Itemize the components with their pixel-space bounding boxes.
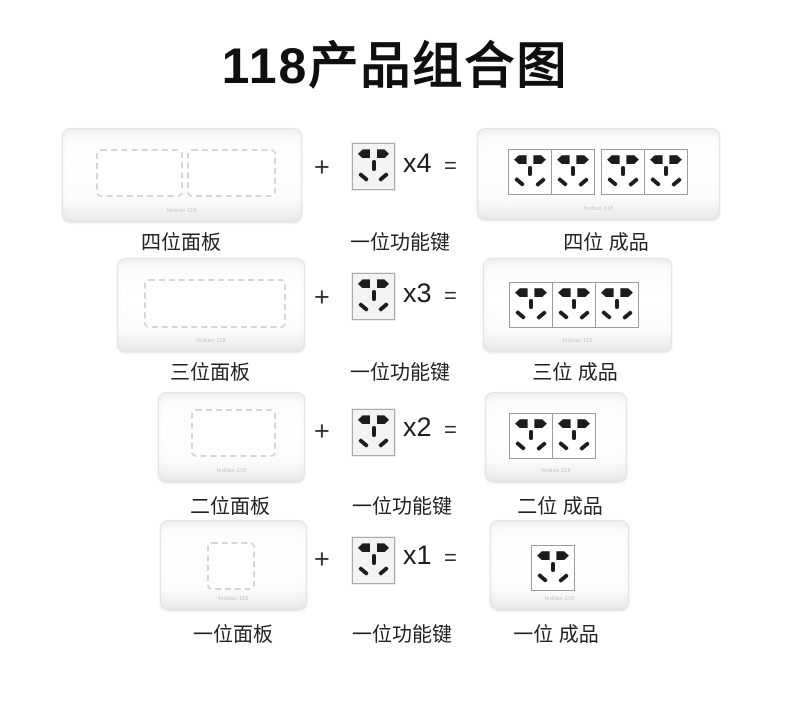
socket-hole-bottom-right <box>671 177 682 187</box>
brand-mark: feidiao·118 <box>161 597 306 602</box>
socket-hole-earth <box>372 290 376 301</box>
socket-hole-top-right <box>377 543 389 552</box>
function-key-image <box>352 143 395 190</box>
socket-hole-bottom-right <box>578 177 589 187</box>
socket-module <box>552 413 596 459</box>
socket-hole-bottom-left <box>358 172 369 182</box>
socket-hole-earth <box>551 562 555 573</box>
panel-4gang-image: feidiao·118 <box>62 128 302 222</box>
combo-row-1gang: feidiao·118 + x1 = feidiao·118 一位面板 一位功能… <box>0 520 790 652</box>
plus-operator: + <box>314 282 330 313</box>
socket-hole-bottom-left <box>607 177 618 187</box>
socket-group <box>509 413 596 459</box>
socket-group <box>531 545 575 591</box>
module-caption: 一位功能键 <box>352 618 452 647</box>
brand-mark: feidiao·118 <box>478 207 719 212</box>
socket-hole-earth <box>529 299 533 310</box>
socket-hole-top-right <box>534 419 547 428</box>
socket-hole-bottom-right <box>628 177 639 187</box>
socket-hole-top-left <box>514 155 527 164</box>
socket-module <box>601 149 645 195</box>
panel-2gang-image: feidiao·118 <box>158 392 305 482</box>
socket-group <box>508 149 595 195</box>
multiplier-text: x1 <box>403 540 432 571</box>
socket-hole-bottom-left <box>558 310 569 320</box>
socket-module <box>552 282 596 328</box>
combo-row-4gang: feidiao·118 + x4 = feidiao·118 四位面板 一位功能… <box>0 128 790 260</box>
socket-hole-top-right <box>669 155 682 164</box>
socket-hole-top-left <box>515 288 528 297</box>
product-4gang-image: feidiao·118 <box>477 128 720 220</box>
socket-hole-top-right <box>620 288 633 297</box>
module-caption: 一位功能键 <box>350 226 450 255</box>
socket-group <box>601 149 688 195</box>
socket-hole-top-right <box>577 419 590 428</box>
panel-opening <box>96 149 183 197</box>
function-key-image <box>352 537 395 584</box>
brand-mark: feidiao·118 <box>118 339 304 344</box>
socket-hole-bottom-left <box>358 566 369 576</box>
socket-hole-top-right <box>556 551 569 560</box>
brand-mark: feidiao·118 <box>486 469 626 474</box>
socket-strip <box>531 545 575 591</box>
product-3gang-image: feidiao·118 <box>483 258 672 352</box>
function-key-image <box>352 409 395 456</box>
socket-hole-top-left <box>358 279 370 288</box>
panel-opening <box>191 409 276 457</box>
socket-hole-earth <box>528 166 532 177</box>
panel-caption: 二位面板 <box>190 490 270 519</box>
socket-hole-top-right <box>377 279 389 288</box>
socket-hole-bottom-left <box>557 177 568 187</box>
socket-module <box>644 149 688 195</box>
socket-module <box>595 282 639 328</box>
product-caption: 一位 成品 <box>513 618 599 647</box>
socket-hole-top-left <box>650 155 663 164</box>
equals-operator: = <box>444 417 457 443</box>
socket-hole-earth <box>529 430 533 441</box>
socket-hole-top-right <box>576 155 589 164</box>
socket-hole-bottom-right <box>558 573 569 583</box>
socket-group <box>509 282 639 328</box>
socket-hole-bottom-left <box>601 310 612 320</box>
plus-operator: + <box>314 152 330 183</box>
product-caption: 四位 成品 <box>563 226 649 255</box>
socket-hole-bottom-right <box>579 310 590 320</box>
function-key-image <box>352 273 395 320</box>
brand-mark: feidiao·118 <box>484 339 671 344</box>
panel-1gang-image: feidiao·118 <box>160 520 307 610</box>
multiplier-text: x4 <box>403 148 432 179</box>
socket-hole-earth <box>372 426 376 437</box>
socket-hole-bottom-left <box>515 310 526 320</box>
product-caption: 二位 成品 <box>517 490 603 519</box>
socket-module <box>509 282 553 328</box>
panel-3gang-image: feidiao·118 <box>117 258 305 352</box>
socket-strip <box>509 413 596 459</box>
socket-hole-bottom-right <box>378 302 389 312</box>
socket-hole-top-left <box>558 419 571 428</box>
module-caption: 一位功能键 <box>352 490 452 519</box>
socket-hole-bottom-left <box>514 177 525 187</box>
socket-strip <box>509 282 639 328</box>
socket-hole-top-right <box>534 288 547 297</box>
socket-strip <box>508 149 688 195</box>
socket-hole-bottom-right <box>536 310 547 320</box>
socket-hole-bottom-right <box>579 441 590 451</box>
socket-hole-bottom-left <box>515 441 526 451</box>
socket-hole-earth <box>621 166 625 177</box>
combo-row-3gang: feidiao·118 + x3 = feidiao·118 三位面板 一位功能… <box>0 258 790 390</box>
equals-operator: = <box>444 283 457 309</box>
panel-caption: 三位面板 <box>170 356 250 385</box>
socket-hole-earth <box>372 554 376 565</box>
socket-hole-top-left <box>601 288 614 297</box>
equals-operator: = <box>444 153 457 179</box>
socket-hole-top-right <box>377 415 389 424</box>
brand-mark: feidiao·118 <box>159 469 304 474</box>
panel-opening <box>144 279 286 328</box>
socket-hole-top-left <box>607 155 620 164</box>
socket-module <box>509 413 553 459</box>
socket-hole-bottom-left <box>558 441 569 451</box>
brand-mark: feidiao·118 <box>63 209 301 214</box>
multiplier-text: x2 <box>403 412 432 443</box>
socket-hole-top-left <box>358 149 370 158</box>
socket-hole-top-left <box>558 288 571 297</box>
product-1gang-image: feidiao·118 <box>490 520 629 610</box>
socket-hole-top-left <box>557 155 570 164</box>
equals-operator: = <box>444 545 457 571</box>
socket-hole-top-left <box>358 543 370 552</box>
socket-hole-bottom-right <box>378 438 389 448</box>
socket-hole-top-right <box>377 149 389 158</box>
page-title: 118产品组合图 <box>0 26 790 98</box>
multiplier-text: x3 <box>403 278 432 309</box>
socket-hole-earth <box>571 166 575 177</box>
brand-mark: feidiao·118 <box>491 597 628 602</box>
panel-caption: 一位面板 <box>193 618 273 647</box>
socket-hole-bottom-right <box>535 177 546 187</box>
socket-hole-earth <box>572 299 576 310</box>
socket-hole-top-left <box>537 551 550 560</box>
socket-hole-top-left <box>358 415 370 424</box>
socket-hole-bottom-right <box>378 172 389 182</box>
panel-caption: 四位面板 <box>141 226 221 255</box>
product-caption: 三位 成品 <box>532 356 618 385</box>
product-combination-diagram: 118产品组合图 feidiao·118 + x4 = feidiao·118 … <box>0 0 790 714</box>
socket-hole-earth <box>372 160 376 171</box>
socket-hole-bottom-right <box>536 441 547 451</box>
socket-hole-bottom-right <box>378 566 389 576</box>
socket-hole-top-right <box>626 155 639 164</box>
panel-opening <box>207 542 255 590</box>
product-2gang-image: feidiao·118 <box>485 392 627 482</box>
plus-operator: + <box>314 416 330 447</box>
plus-operator: + <box>314 544 330 575</box>
socket-hole-earth <box>664 166 668 177</box>
socket-hole-earth <box>572 430 576 441</box>
socket-hole-bottom-right <box>622 310 633 320</box>
socket-hole-bottom-left <box>537 573 548 583</box>
module-caption: 一位功能键 <box>350 356 450 385</box>
combo-row-2gang: feidiao·118 + x2 = feidiao·118 二位面板 一位功能… <box>0 392 790 524</box>
socket-hole-earth <box>615 299 619 310</box>
socket-hole-bottom-left <box>358 438 369 448</box>
socket-module <box>508 149 552 195</box>
socket-hole-bottom-left <box>650 177 661 187</box>
socket-hole-top-right <box>577 288 590 297</box>
socket-module <box>551 149 595 195</box>
socket-hole-top-right <box>533 155 546 164</box>
socket-hole-top-left <box>515 419 528 428</box>
panel-opening <box>187 149 276 197</box>
socket-module <box>531 545 575 591</box>
socket-hole-bottom-left <box>358 302 369 312</box>
